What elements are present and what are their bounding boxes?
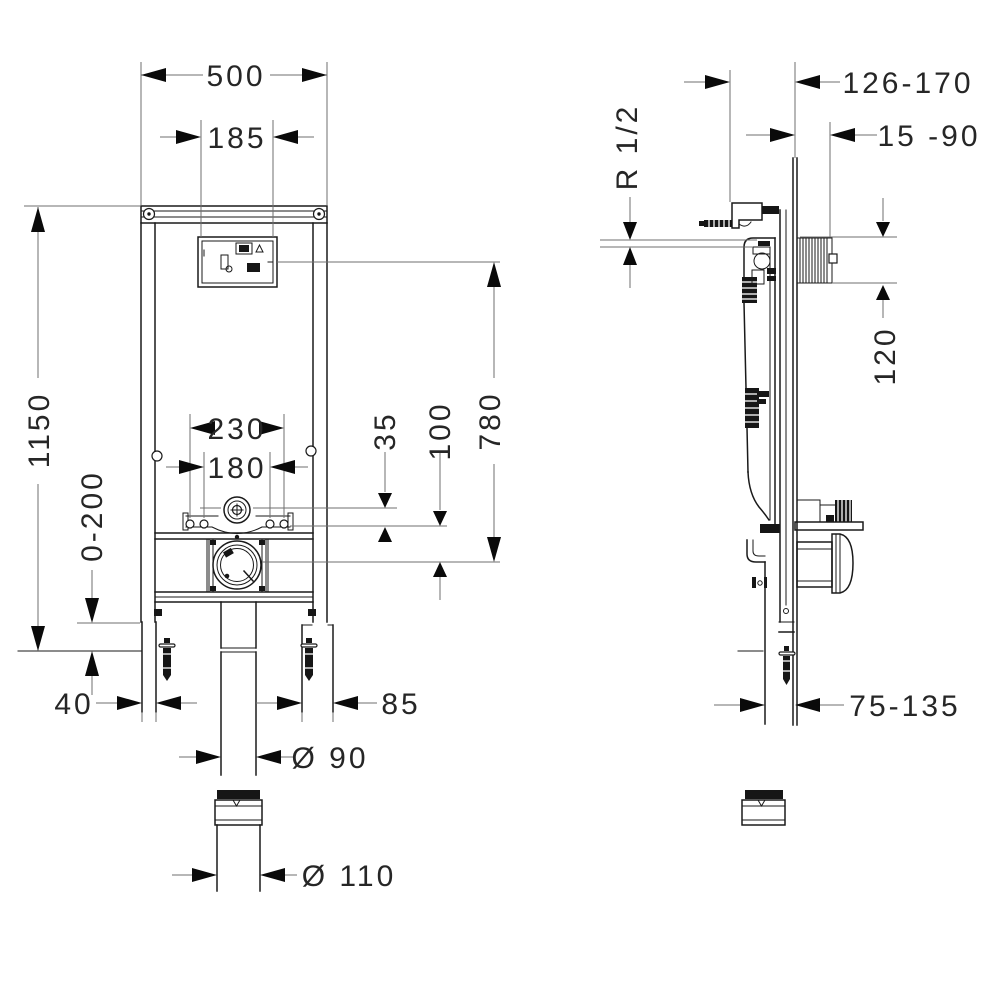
dim-outlet-offset-label: 100 bbox=[424, 401, 457, 460]
floor-anchor-bolt bbox=[783, 656, 790, 679]
mounting-shelf bbox=[795, 522, 863, 530]
wall-hatch-block bbox=[797, 238, 837, 283]
dim-overall-height-label: 1150 bbox=[23, 392, 56, 469]
dim-opening-height-label: 120 bbox=[869, 326, 902, 385]
dim-leg-adjustment: 0-200 bbox=[76, 470, 140, 695]
drain-outlet bbox=[209, 539, 266, 592]
dim-outlet-diameter-label: Ø 90 bbox=[291, 742, 368, 775]
dim-leg-adjustment-label: 0-200 bbox=[76, 470, 109, 562]
front-view: 500 185 1150 0-200 bbox=[18, 60, 507, 893]
dim-fixing-inner-label: 180 bbox=[207, 452, 266, 485]
fill-valve-icon bbox=[754, 253, 770, 269]
dim-flush-offset: 35 bbox=[369, 411, 402, 542]
dim-frame-depth-label: 126-170 bbox=[842, 67, 973, 100]
dim-outlet-offset: 100 bbox=[424, 401, 457, 600]
pipe-coupling-side bbox=[742, 790, 785, 825]
fixing-hole-icon bbox=[266, 520, 274, 528]
dim-water-connection-label: R 1/2 bbox=[611, 104, 644, 191]
threaded-rod-icon bbox=[704, 220, 732, 227]
dim-wall-finish: 15 -90 bbox=[746, 120, 981, 237]
wall-line bbox=[793, 62, 797, 725]
technical-drawing-page: 500 185 1150 0-200 bbox=[0, 0, 1000, 1000]
dim-foot-width-label: 40 bbox=[54, 688, 93, 721]
leg-clip-icon bbox=[308, 609, 316, 616]
fixing-hole-icon bbox=[200, 520, 208, 528]
dim-outlet-depth-label: 75-135 bbox=[849, 690, 960, 723]
side-view: 126-170 15 -90 R 1/2 120 bbox=[600, 62, 981, 825]
installation-frame-drawing: 500 185 1150 0-200 bbox=[0, 0, 1000, 1000]
warning-triangle-icon bbox=[256, 245, 263, 252]
dim-foot-width: 40 bbox=[54, 688, 197, 721]
outlet-pipe bbox=[221, 602, 256, 775]
dim-overall-width-label: 500 bbox=[206, 60, 265, 93]
wall-connection-set bbox=[795, 500, 863, 593]
dim-opening-to-outlet: 780 bbox=[474, 262, 507, 562]
dim-opening-height: 120 bbox=[800, 198, 902, 386]
dim-fixing-outer-label: 230 bbox=[207, 413, 266, 446]
dim-wall-finish-label: 15 -90 bbox=[877, 120, 980, 153]
floor-anchor-bolt bbox=[159, 638, 175, 681]
dim-flush-offset-label: 35 bbox=[369, 411, 402, 450]
outlet-elbow bbox=[747, 524, 780, 724]
pipe-coupling bbox=[215, 790, 262, 891]
fixing-hole-icon bbox=[186, 520, 194, 528]
frame-top-rail bbox=[141, 206, 327, 223]
marking-icon bbox=[752, 577, 756, 588]
dim-water-connection: R 1/2 bbox=[600, 104, 757, 288]
dim-outlet-depth: 75-135 bbox=[714, 690, 961, 723]
dim-connector-diameter-label: Ø 110 bbox=[302, 860, 397, 893]
dim-opening-to-outlet-label: 780 bbox=[474, 391, 507, 450]
floor-anchor-bolt bbox=[301, 638, 317, 681]
dim-opening-width-label: 185 bbox=[207, 122, 266, 155]
dim-foot-plate-width-label: 85 bbox=[381, 688, 420, 721]
dim-outlet-diameter: Ø 90 bbox=[179, 742, 369, 775]
cistern-side-profile bbox=[742, 238, 776, 588]
dim-foot-plate-width: 85 bbox=[256, 688, 421, 721]
water-supply-bracket bbox=[699, 203, 779, 228]
dim-overall-height: 1150 bbox=[23, 206, 140, 651]
fixing-hole-icon bbox=[280, 520, 288, 528]
dim-connector-diameter: Ø 110 bbox=[172, 860, 396, 893]
dim-opening-width: 185 bbox=[160, 120, 314, 237]
service-opening-box bbox=[198, 237, 277, 287]
leg-clip-icon bbox=[154, 609, 162, 616]
